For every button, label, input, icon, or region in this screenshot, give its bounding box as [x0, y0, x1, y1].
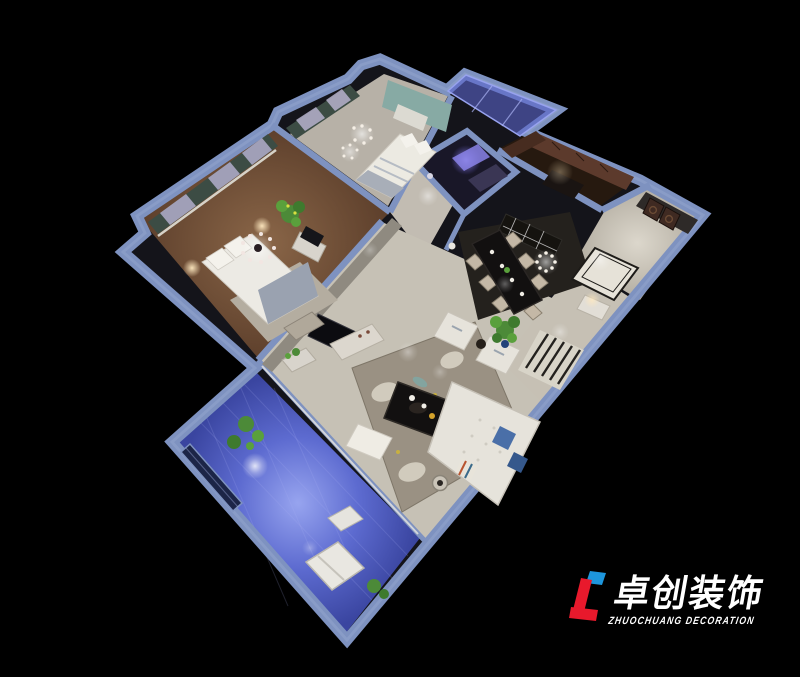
- dining-chandelier: [533, 249, 559, 275]
- floorplan-render: 卓创装饰 ZHUOCHUANG DECORATION: [0, 0, 800, 677]
- bedside-lamp: [183, 259, 201, 277]
- balcony-ceiling-light: [242, 453, 268, 479]
- render-canvas: 卓创装饰 ZHUOCHUANG DECORATION: [0, 0, 800, 677]
- sculpture: [449, 243, 456, 250]
- side-table: [476, 339, 486, 349]
- logo-name: 卓创装饰: [611, 572, 768, 614]
- logo-tagline: ZHUOCHUANG DECORATION: [607, 615, 756, 627]
- round-tray-stool: [433, 476, 448, 491]
- sink: [427, 173, 433, 179]
